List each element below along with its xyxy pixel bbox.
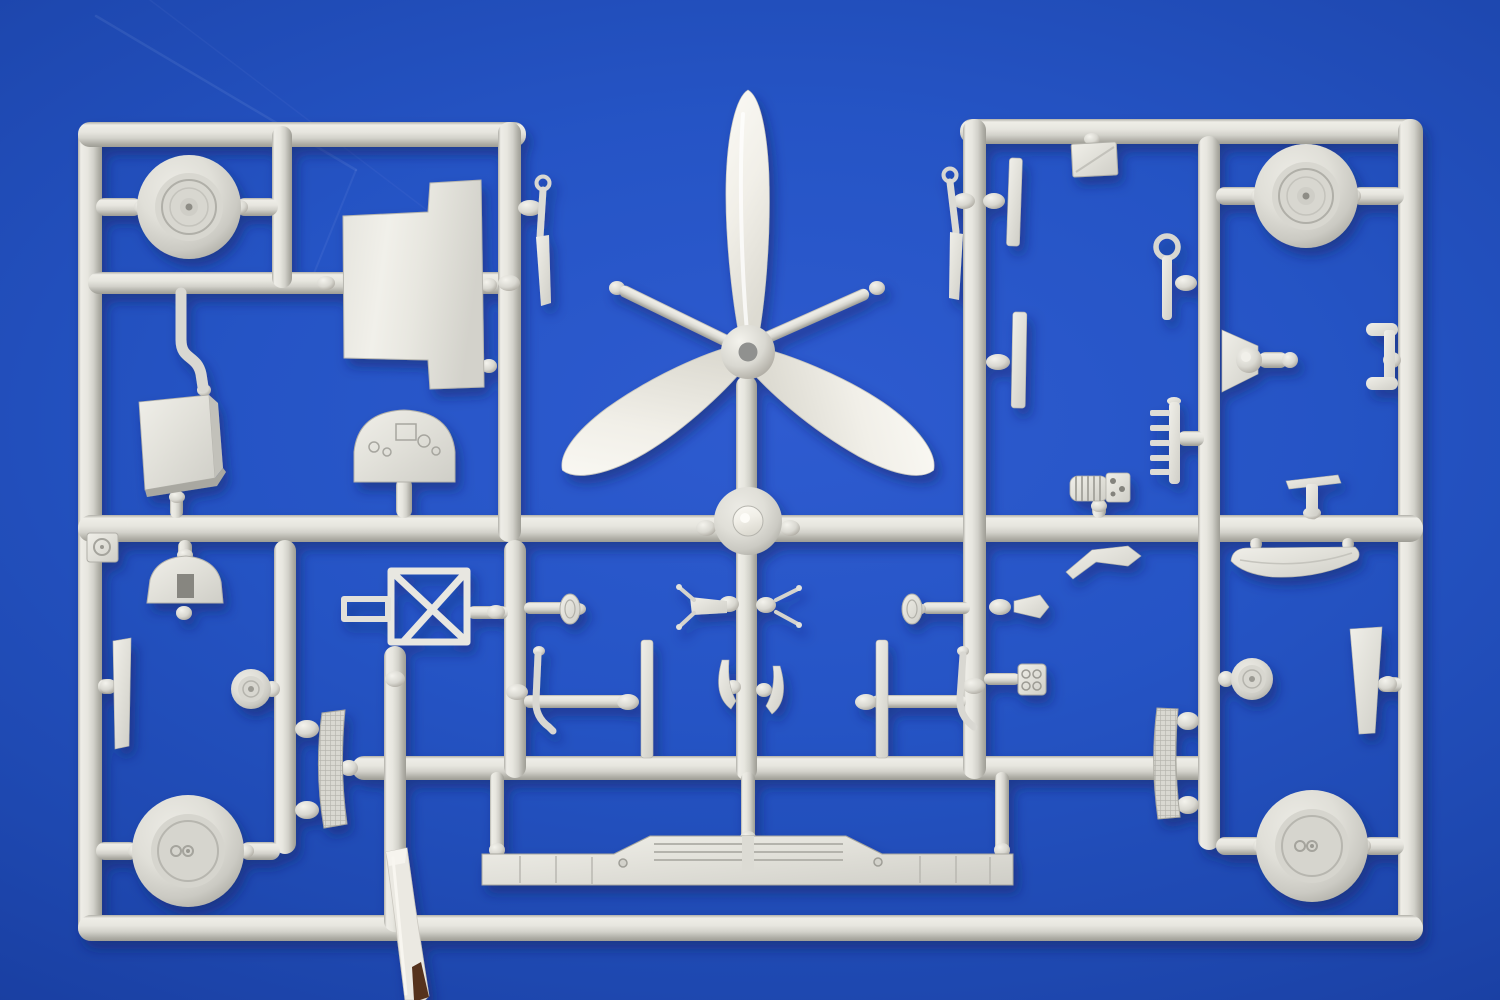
sprue-frame	[78, 90, 1423, 1000]
sprue-gate-node	[780, 520, 800, 536]
exhaust-prong	[1150, 440, 1170, 446]
tapered-blade-left	[113, 638, 131, 749]
main-wheel-bottom-right	[1256, 790, 1368, 902]
main-wheel-bottom-right-ring	[1310, 844, 1314, 848]
tail-wheel-disc-left	[231, 669, 271, 709]
exhaust-prong	[1150, 425, 1170, 431]
tail-wheel-disc-left-ring	[248, 686, 254, 692]
antenna-prong-ball	[676, 584, 682, 590]
engine-port	[1119, 486, 1125, 492]
fuselage-panel-sheet	[343, 180, 484, 389]
sprue-gate-node	[498, 275, 520, 291]
propeller-hub-hole	[739, 343, 758, 362]
sprue-gate-node	[989, 599, 1011, 615]
instrument-panel-stub	[396, 478, 412, 518]
runner-v4	[504, 540, 526, 778]
sprue-gate-node	[487, 605, 505, 619]
flat-strip-c	[641, 640, 653, 758]
exhaust-rail-bar	[1169, 402, 1180, 484]
flat-strip-d	[876, 640, 888, 758]
sprue-gate-node	[506, 684, 528, 700]
wing-spar-center-tab	[742, 836, 754, 872]
tail-wheel-disc-right-ring	[1249, 676, 1255, 682]
sprue-gate-node	[481, 278, 497, 292]
box-part-front	[139, 395, 215, 490]
ibeam-web	[1384, 330, 1395, 384]
wing-spar-rivet	[874, 858, 882, 866]
frame-rail-top-right	[960, 119, 1422, 144]
sprue-gate-node	[385, 671, 405, 687]
radiator-core-right	[1154, 708, 1180, 819]
grab-ring-loop	[1156, 236, 1178, 258]
strip-c-stub	[524, 695, 630, 708]
sprue-gate-node	[983, 193, 1005, 209]
wing-spar-rivet	[619, 859, 627, 867]
grab-ring-shank	[1162, 256, 1172, 320]
placard-plate	[1018, 664, 1046, 695]
antenna-prong-ball	[796, 585, 802, 591]
cockpit-truss-frame	[391, 571, 467, 642]
engine-block	[1106, 473, 1130, 502]
bent-rod-left-shaft	[540, 190, 543, 237]
antenna-prong-ball	[676, 624, 682, 630]
exhaust-stub	[1178, 431, 1204, 446]
sprue-gate-node	[855, 694, 877, 710]
sprue-gate-node	[1177, 796, 1199, 814]
antenna-prongs-right	[776, 589, 798, 624]
bent-rod-left-blade	[536, 235, 551, 306]
engine-port	[1110, 478, 1116, 484]
sprue-gate-node	[1379, 676, 1397, 692]
tail-wheel-disc-right	[1231, 658, 1273, 700]
antenna-prong-ball	[796, 622, 802, 628]
cap-part-left	[560, 594, 580, 624]
ibeam-flange-bottom	[1366, 377, 1398, 390]
sprue-gate-node	[1091, 500, 1107, 512]
propeller-runner-arm-left	[617, 284, 739, 352]
main-wheel-top-right-ring	[1303, 193, 1310, 200]
exhaust-prong	[1150, 410, 1170, 416]
sprue-gate-node	[963, 678, 985, 694]
sprue-gate-node	[986, 354, 1010, 370]
sprue-gate-node	[176, 606, 192, 620]
sprue-gate-node	[617, 694, 639, 710]
frame-rail-lower-center	[352, 756, 1216, 780]
bent-lever-left	[536, 655, 553, 731]
frame-rail-bottom	[78, 915, 1423, 941]
sprue-gate-node	[756, 597, 776, 613]
square-pad-dot	[100, 545, 104, 549]
sprue-gate-node	[696, 520, 716, 536]
bent-rod-right-shaft	[950, 182, 956, 232]
truss-side-loop	[344, 599, 388, 619]
frame-rail-top-left	[78, 122, 526, 147]
bent-flat-part	[1066, 546, 1141, 579]
sprue-gate-node	[756, 683, 772, 697]
radiator-core-left	[318, 710, 347, 828]
flat-strip-b	[1011, 312, 1027, 408]
engine-port	[1111, 492, 1116, 497]
cap-part-right	[902, 594, 922, 624]
exhaust-prong	[1150, 455, 1170, 461]
main-wheel-top-right	[1254, 144, 1358, 248]
main-wheel-top-left	[137, 155, 241, 259]
funnel-boss-highlight	[1241, 352, 1251, 362]
sprue-photo-svg	[0, 0, 1500, 1000]
sprue-gate-node	[317, 276, 335, 290]
main-wheel-bottom-left	[132, 795, 244, 907]
sprue-gate-node	[295, 720, 319, 738]
sprue-gate-node	[295, 801, 319, 819]
runner-v3	[274, 540, 296, 854]
runner-vcenter-lower	[736, 538, 757, 780]
spinner-boss-highlight	[740, 513, 750, 523]
exhaust-prong	[1150, 469, 1170, 475]
placard-stub	[984, 673, 1020, 685]
sprue-gate-node	[869, 281, 885, 295]
flat-strip-a	[1006, 158, 1022, 246]
bent-rod-right-blade	[949, 232, 963, 300]
main-wheel-top-left-ring	[186, 204, 193, 211]
cap-right-stub	[922, 602, 970, 614]
sprue-gate-node	[1175, 275, 1197, 291]
runner-v2	[498, 122, 521, 542]
t-part-post	[1306, 484, 1318, 516]
dome-fairing-slot	[177, 574, 194, 598]
sprue-photo	[0, 0, 1500, 1000]
main-wheel-bottom-left-ring	[186, 849, 190, 853]
sprue-gate-node	[1282, 352, 1298, 368]
cone-part	[1014, 595, 1049, 618]
tapered-blade-right	[1350, 627, 1382, 734]
box-part-arm	[181, 293, 203, 387]
runner-v6	[1198, 136, 1220, 850]
propeller-blade-top	[726, 90, 769, 346]
sprue-gate-node	[1177, 712, 1199, 730]
